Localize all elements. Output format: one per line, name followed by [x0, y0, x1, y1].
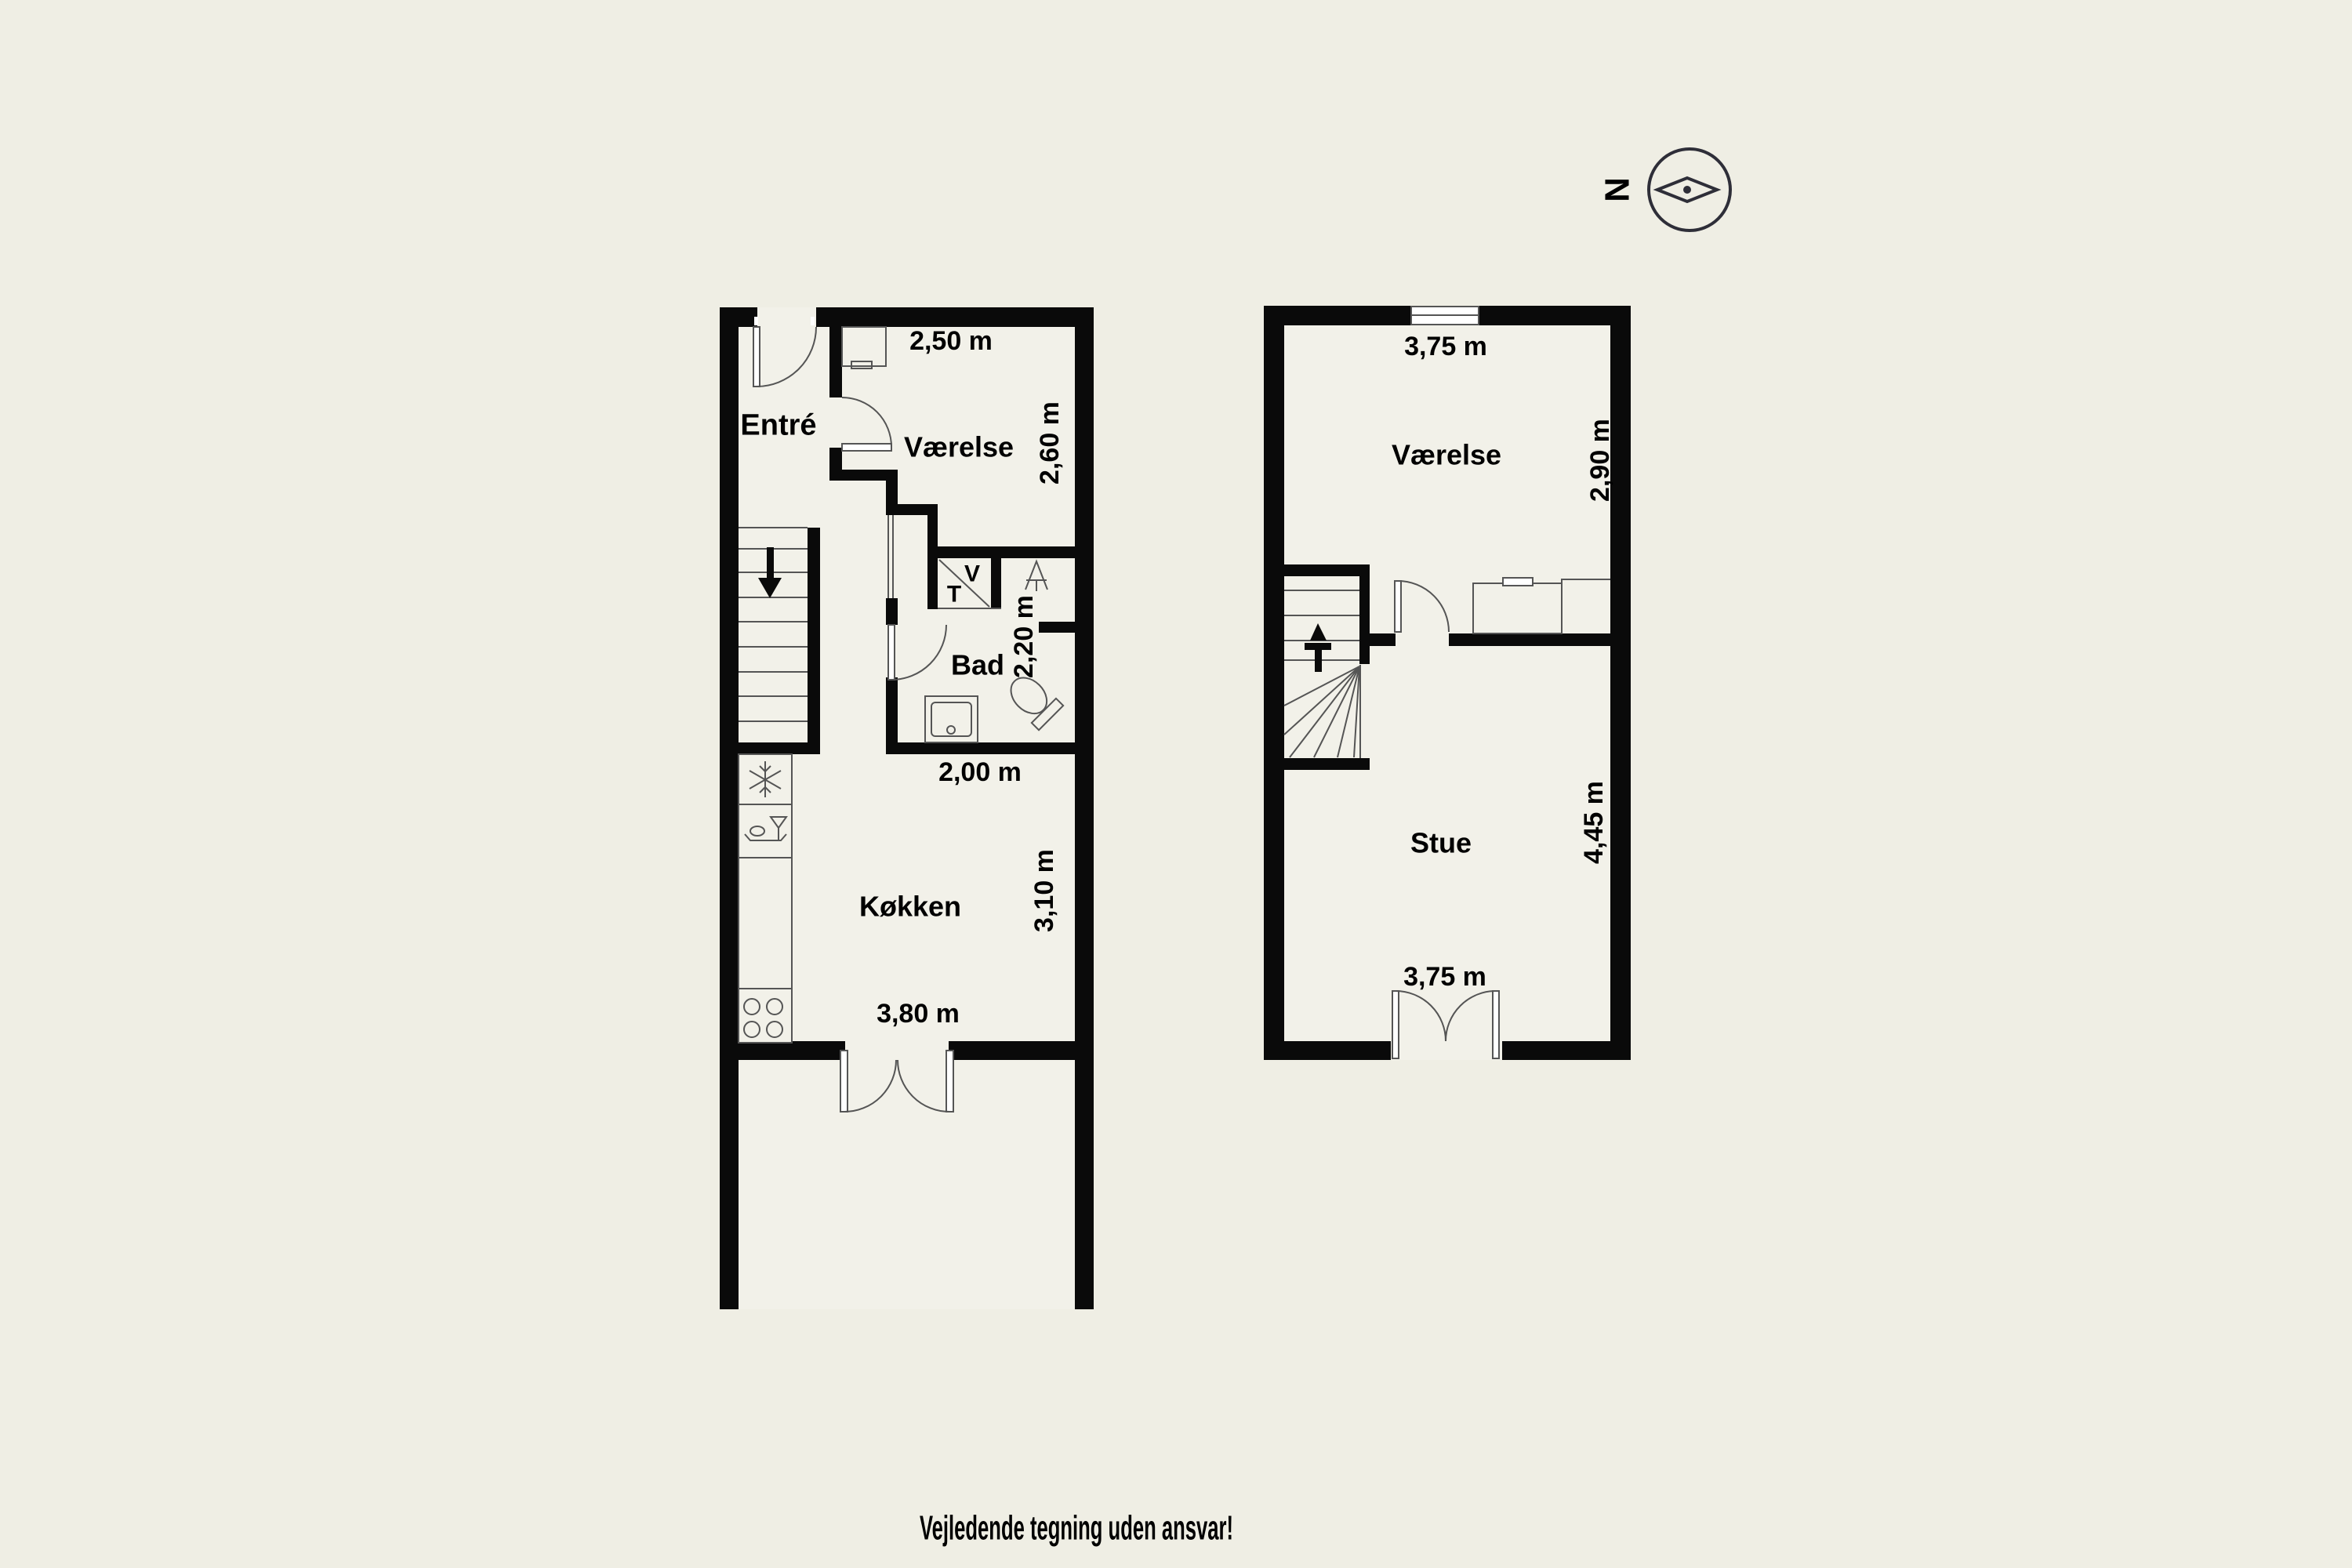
vaerelse1-depth: 2,60 m [1035, 401, 1065, 485]
washer-label: V [964, 561, 980, 587]
bad-width: 2,00 m [938, 757, 1022, 787]
north-label: N [1598, 177, 1636, 202]
entre-label: Entré [740, 408, 816, 441]
first-floor-plan: 3,75 m Værelse 2,90 m Stue 4,45 m 3,75 m [1264, 306, 1631, 1060]
first-floor-area [1264, 306, 1631, 1060]
stue-depth: 4,45 m [1579, 781, 1609, 864]
ground-floor-plan: V T [720, 307, 1094, 1309]
koekken-label: Køkken [859, 891, 961, 923]
kitchen-counter [739, 754, 792, 1043]
vaerelse2-depth: 2,90 m [1585, 419, 1615, 502]
stue-label: Stue [1410, 827, 1472, 859]
floorplan-page: V T [0, 0, 2352, 1568]
bad-depth: 2,20 m [1009, 595, 1039, 678]
vaerelse2-label: Værelse [1392, 439, 1501, 471]
koekken-depth: 3,10 m [1029, 849, 1059, 932]
stue-width: 3,75 m [1403, 962, 1486, 992]
compass: N [1598, 149, 1730, 230]
vaerelse1-width: 2,50 m [909, 326, 993, 356]
dryer-label: T [947, 582, 961, 608]
compass-icon [1649, 149, 1730, 230]
disclaimer-text: Vejledende tegning uden ansvar! [920, 1508, 1233, 1547]
floorplan-drawing: V T [0, 0, 2352, 1568]
bad-label: Bad [951, 649, 1004, 681]
vaerelse2-width: 3,75 m [1404, 332, 1487, 361]
window [1411, 307, 1479, 325]
vaerelse1-label: Værelse [904, 431, 1014, 463]
koekken-width: 3,80 m [877, 999, 960, 1029]
